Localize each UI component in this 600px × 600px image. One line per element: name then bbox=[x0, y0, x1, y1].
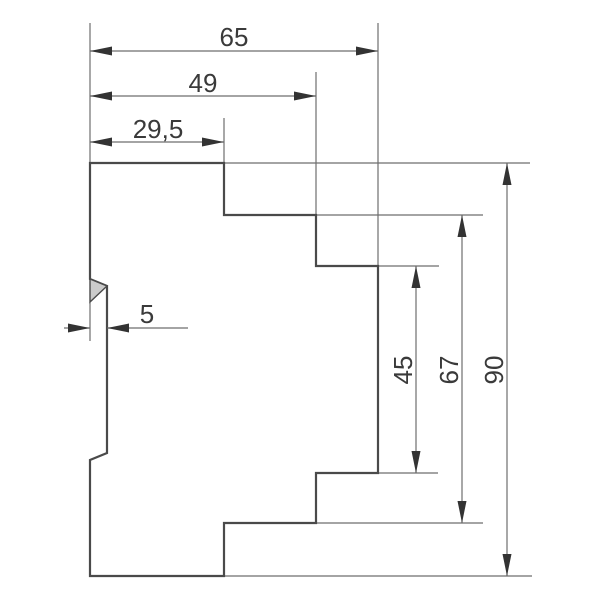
dim-29-5-arrow-right bbox=[202, 138, 224, 147]
dim-67-arrow-top bbox=[458, 215, 467, 237]
dim-90-arrow-bottom bbox=[503, 554, 512, 576]
dim-67-label: 67 bbox=[434, 356, 464, 385]
dim-45-arrow-bottom bbox=[412, 451, 421, 473]
dim-29-5-arrow-left bbox=[90, 138, 112, 147]
dimension-lines-layer bbox=[64, 47, 512, 577]
dim-49-label: 49 bbox=[189, 68, 218, 98]
dim-45-label: 45 bbox=[388, 356, 418, 385]
dim-45-arrow-top bbox=[412, 266, 421, 288]
dim-5-label: 5 bbox=[140, 299, 154, 329]
din-device-profile-drawing: 654929,55456790 bbox=[0, 0, 600, 600]
dim-5-arrow-left bbox=[68, 324, 90, 333]
dim-49-arrow-left bbox=[90, 92, 112, 101]
dim-65-arrow-right bbox=[356, 47, 378, 56]
dim-67-arrow-bottom bbox=[458, 501, 467, 523]
technical-drawing-canvas: 654929,55456790 bbox=[0, 0, 600, 600]
dim-90-label: 90 bbox=[479, 356, 509, 385]
dim-65-arrow-left bbox=[90, 47, 112, 56]
dim-5-arrow-right bbox=[107, 324, 129, 333]
extension-lines-layer bbox=[90, 23, 532, 576]
dim-29-5-label: 29,5 bbox=[133, 114, 184, 144]
device-profile-layer bbox=[90, 163, 378, 576]
dim-49-arrow-right bbox=[294, 92, 316, 101]
din-clip-wedge bbox=[90, 279, 107, 302]
dim-65-label: 65 bbox=[220, 22, 249, 52]
dimension-labels-layer: 654929,55456790 bbox=[133, 22, 509, 384]
dim-90-arrow-top bbox=[503, 163, 512, 185]
device-outline bbox=[90, 163, 378, 576]
